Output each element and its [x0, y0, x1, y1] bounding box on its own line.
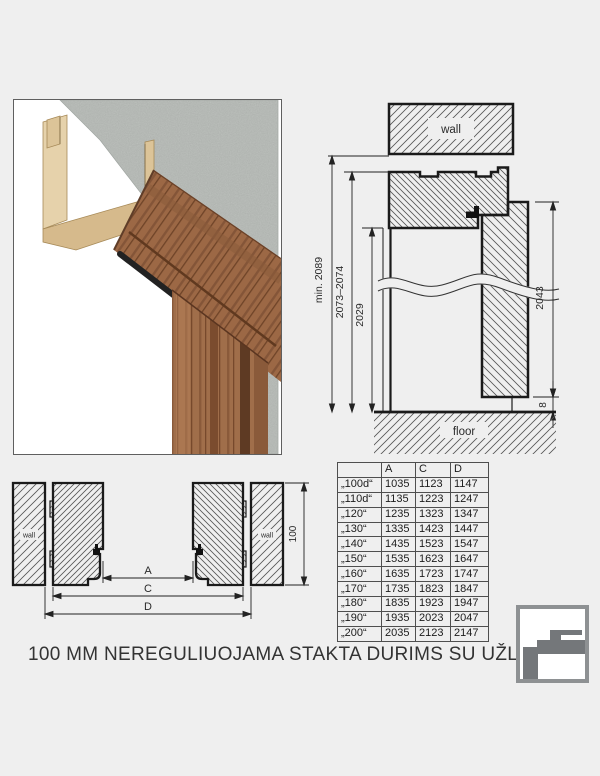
logo-frame-block — [523, 647, 538, 679]
table-row: „200“ 2035 2123 2147 — [338, 626, 489, 641]
row-label: „160“ — [338, 567, 382, 582]
wall-label: wall — [440, 124, 461, 136]
row-label: „140“ — [338, 537, 382, 552]
value-a: 1235 — [382, 507, 416, 522]
table-row: „120“ 1235 1323 1347 — [338, 507, 489, 522]
table-row: „110d“ 1135 1223 1247 — [338, 492, 489, 507]
spec-sheet-page: wall min. 2089 2073–2074 2029 — [0, 0, 600, 776]
value-c: 1123 — [416, 477, 451, 492]
row-label: „120“ — [338, 507, 382, 522]
value-d: 2147 — [451, 626, 489, 641]
value-c: 1523 — [416, 537, 451, 552]
row-label: „190“ — [338, 611, 382, 626]
row-label: „130“ — [338, 522, 382, 537]
size-table: A C D „100d“ 1035 1123 1147 „110d“ 1135 … — [337, 462, 489, 642]
value-c: 1723 — [416, 567, 451, 582]
row-label: „200“ — [338, 626, 382, 641]
value-c: 1423 — [416, 522, 451, 537]
header-c: C — [416, 463, 451, 478]
row-label: „170“ — [338, 582, 382, 597]
product-title: 100 MM NEREGULIUOJAMA STAKTA DURIMS SU U… — [28, 644, 588, 666]
dim-frame-height-label: 2073–2074 — [334, 266, 346, 319]
value-c: 1823 — [416, 582, 451, 597]
dim-frame-depth-label: 100 — [288, 525, 299, 542]
header-blank — [338, 463, 382, 478]
value-c: 1323 — [416, 507, 451, 522]
table-row: „150“ 1535 1623 1647 — [338, 552, 489, 567]
table-header-row: A C D — [338, 463, 489, 478]
header-d: D — [451, 463, 489, 478]
plan-wall-left: wall — [13, 483, 45, 585]
floor-label: floor — [453, 426, 476, 438]
dim-a-label: A — [144, 565, 152, 577]
table-row: „170“ 1735 1823 1847 — [338, 582, 489, 597]
logo-profile-arm — [561, 630, 582, 635]
break-wave — [378, 274, 559, 300]
value-c: 2023 — [416, 611, 451, 626]
value-a: 1635 — [382, 567, 416, 582]
value-a: 2035 — [382, 626, 416, 641]
plan-jamb-left — [50, 483, 103, 585]
value-d: 1447 — [451, 522, 489, 537]
dim-total-min-label: min. 2089 — [313, 257, 325, 303]
value-d: 1947 — [451, 597, 489, 612]
head-seal — [466, 212, 479, 219]
table-row: „190“ 1935 2023 2047 — [338, 611, 489, 626]
row-label: „110d“ — [338, 492, 382, 507]
wall-left-label: wall — [22, 533, 36, 540]
brand-logo — [516, 605, 589, 683]
row-label: „150“ — [338, 552, 382, 567]
plan-jamb-right — [193, 483, 246, 585]
value-d: 1247 — [451, 492, 489, 507]
value-a: 1435 — [382, 537, 416, 552]
logo-profile-bar — [537, 640, 585, 654]
floor-block: floor — [374, 412, 556, 454]
value-c: 1923 — [416, 597, 451, 612]
value-d: 1347 — [451, 507, 489, 522]
dim-leaf-height-label: 2043 — [534, 286, 546, 310]
table-row: „130“ 1335 1423 1447 — [338, 522, 489, 537]
value-d: 1547 — [451, 537, 489, 552]
frame-corner-3d-image — [13, 99, 282, 455]
header-a: A — [382, 463, 416, 478]
value-a: 1135 — [382, 492, 416, 507]
value-d: 1647 — [451, 552, 489, 567]
jamb-seal — [93, 549, 100, 555]
row-label: „100d“ — [338, 477, 382, 492]
value-a: 1535 — [382, 552, 416, 567]
value-a: 1035 — [382, 477, 416, 492]
door-leaf-section — [482, 202, 528, 397]
dim-c-label: C — [144, 583, 152, 595]
value-d: 2047 — [451, 611, 489, 626]
dim-opening-height-label: 2029 — [354, 303, 366, 327]
logo-profile-step — [550, 630, 561, 640]
value-a: 1835 — [382, 597, 416, 612]
table-row: „140“ 1435 1523 1547 — [338, 537, 489, 552]
vertical-section-diagram: wall min. 2089 2073–2074 2029 — [300, 95, 600, 460]
value-d: 1147 — [451, 477, 489, 492]
plan-section-diagram: wall wall A C D — [5, 475, 330, 630]
value-a: 1335 — [382, 522, 416, 537]
value-d: 1847 — [451, 582, 489, 597]
value-a: 1735 — [382, 582, 416, 597]
wall-block: wall — [389, 104, 513, 154]
frame-corner-3d-drawing — [14, 100, 281, 454]
table-row: „100d“ 1035 1123 1147 — [338, 477, 489, 492]
plan-wall-right: wall — [251, 483, 283, 585]
row-label: „180“ — [338, 597, 382, 612]
value-d: 1747 — [451, 567, 489, 582]
dim-d-label: D — [144, 601, 152, 613]
value-c: 1223 — [416, 492, 451, 507]
value-c: 2123 — [416, 626, 451, 641]
value-a: 1935 — [382, 611, 416, 626]
dim-floor-gap-label: 8 — [538, 402, 549, 408]
table-row: „160“ 1635 1723 1747 — [338, 567, 489, 582]
jamb-elevation-lines — [383, 228, 391, 412]
value-c: 1623 — [416, 552, 451, 567]
wall-right-label: wall — [260, 533, 274, 540]
table-row: „180“ 1835 1923 1947 — [338, 597, 489, 612]
